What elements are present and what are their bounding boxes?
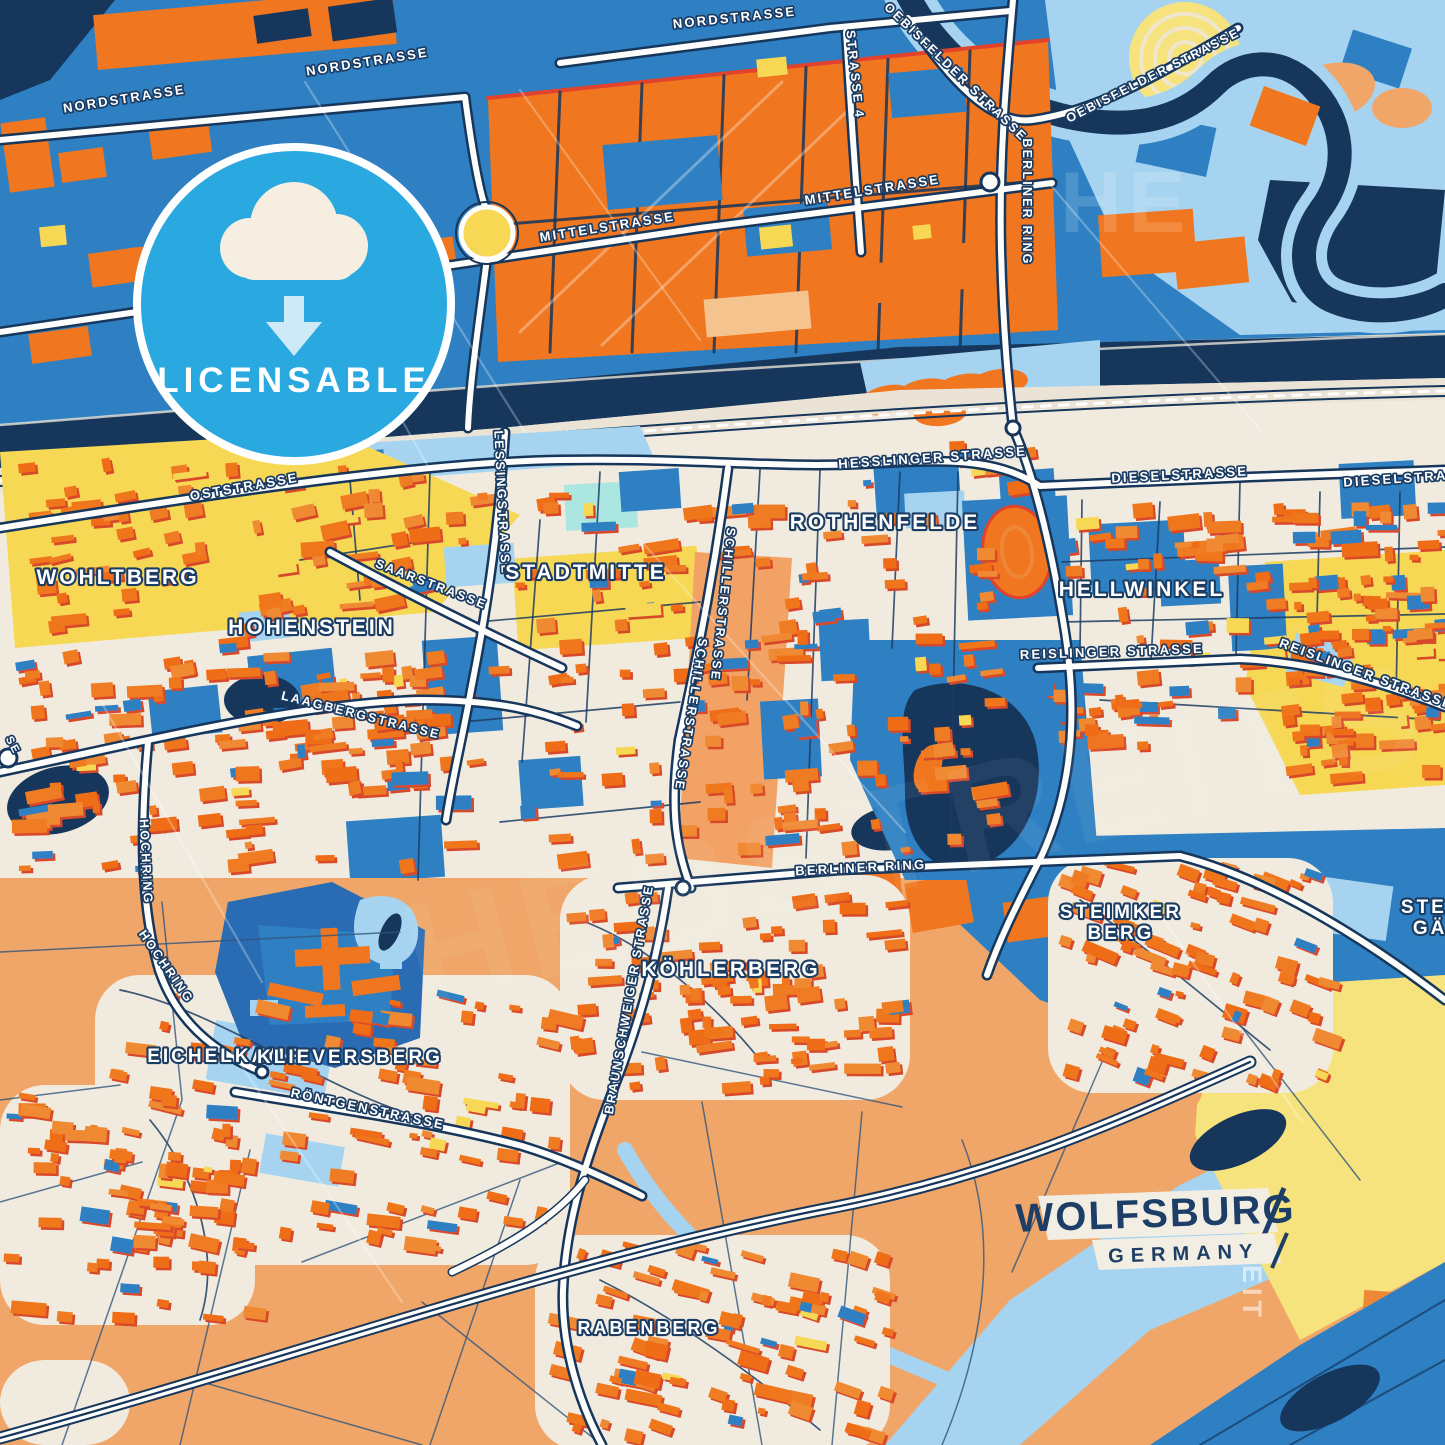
district-label: BERG: [1088, 923, 1155, 944]
street-label: BERLINER RING: [1020, 138, 1034, 265]
district-label: WOHLTBERG: [36, 566, 199, 589]
district-label: HOHENSTEIN: [228, 616, 396, 639]
district-label: GÄRTEN: [1413, 918, 1445, 939]
district-label: STEIMKER: [1060, 902, 1182, 923]
district-label: KÖHLERBERG: [641, 958, 820, 981]
district-label: KLIEVERSBERG: [257, 1047, 443, 1068]
district-label: STEIMKER: [1401, 897, 1445, 918]
map-canvas: HEHEBSTREITSNORDSTRASSENORDSTRASSENORDST…: [0, 0, 1445, 1445]
licensable-badge[interactable]: LICENSABLE: [137, 147, 451, 461]
badge-label: LICENSABLE: [157, 361, 431, 400]
district-label: STADTMITTE: [505, 561, 666, 584]
watermark-fragment-horizontal: HE: [1060, 155, 1191, 251]
district-label: HELLWINKEL: [1059, 578, 1226, 601]
district-label: ROTHENFELDE: [790, 511, 981, 534]
map-poster: HEHEBSTREITSNORDSTRASSENORDSTRASSENORDST…: [0, 0, 1445, 1445]
district-label: RABENBERG: [577, 1318, 720, 1338]
